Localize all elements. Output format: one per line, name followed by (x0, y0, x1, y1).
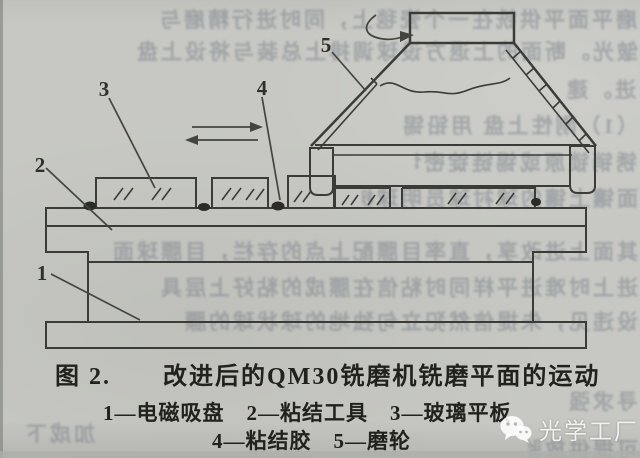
figure-legend-line1: 1—电磁吸盘 2—粘结工具 3—玻璃平板 (103, 397, 512, 427)
watermark: 光学工厂 (499, 410, 640, 448)
page-edge-shadow (0, 451, 640, 458)
grinding-wheel (310, 13, 596, 195)
feed-arrow-left-icon (185, 135, 258, 145)
scanned-page: 磨平面平供铣在一个瓷毯上，同时进行精磨与 皱光。断面的上退方设球调排上总装与将设… (0, 0, 640, 458)
part-label-5: 5 (321, 33, 332, 57)
rotation-arrow-icon (367, 15, 414, 42)
abrasive-pad (570, 146, 595, 193)
figure-number: 图 2. (55, 364, 111, 390)
part-label-4: 4 (257, 76, 268, 100)
page-edge-shadow (0, 0, 3, 458)
glass-plate (96, 176, 335, 208)
magnetic-chuck (46, 226, 586, 348)
bonding-tool-plate (46, 208, 586, 226)
wechat-icon (499, 413, 533, 445)
leader-lines (46, 52, 366, 320)
feed-arrows (185, 122, 263, 145)
part-label-2: 2 (35, 153, 46, 177)
feed-arrow-right-icon (192, 122, 263, 132)
glass-plate-under-wheel (334, 188, 535, 208)
abrasive-pad (310, 148, 333, 195)
part-label-3: 3 (99, 77, 110, 101)
wheel-spindle (410, 13, 514, 43)
watermark-text: 光学工厂 (539, 412, 639, 446)
figure-title: 改进后的QM30铣磨机铣磨平面的运动 (163, 364, 600, 390)
part-label-1: 1 (37, 261, 48, 285)
figure-caption: 图 2.改进后的QM30铣磨机铣磨平面的运动 (55, 356, 600, 391)
